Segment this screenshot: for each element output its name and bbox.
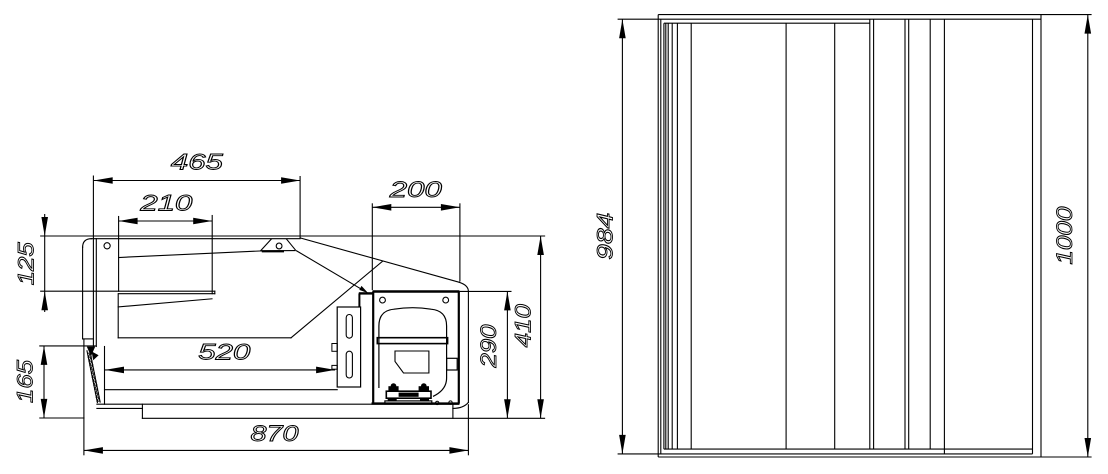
svg-text:465: 465 (171, 150, 224, 175)
svg-text:984: 984 (592, 213, 617, 260)
svg-text:125: 125 (14, 241, 39, 285)
svg-text:410: 410 (511, 303, 536, 347)
svg-text:1000: 1000 (1052, 206, 1077, 265)
svg-text:290: 290 (476, 324, 501, 369)
svg-text:870: 870 (251, 421, 300, 446)
svg-text:165: 165 (13, 359, 38, 403)
svg-text:200: 200 (388, 177, 442, 202)
svg-text:210: 210 (139, 190, 193, 215)
svg-text:520: 520 (198, 339, 251, 364)
